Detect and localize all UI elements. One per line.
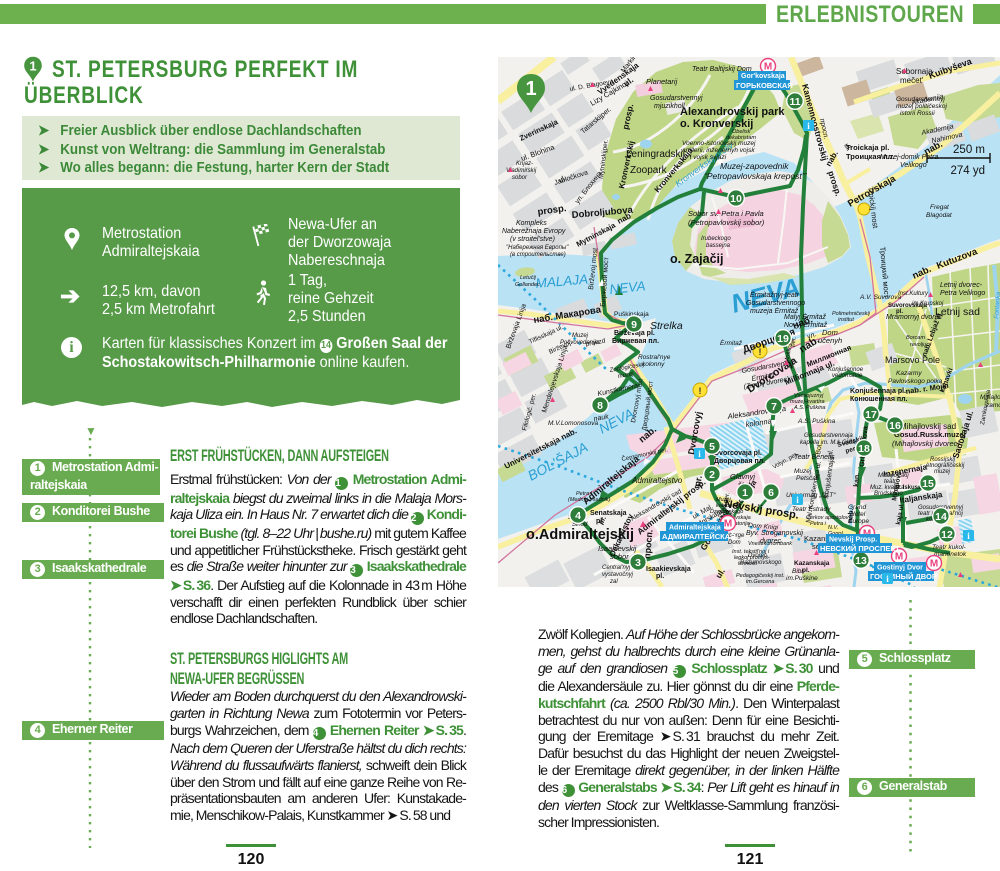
svg-text:institut: institut <box>838 317 854 323</box>
svg-text:Voenno-istoričeskij muzej: Voenno-istoričeskij muzej <box>682 140 756 147</box>
svg-text:6: 6 <box>768 487 774 499</box>
svg-text:M: M <box>895 552 903 563</box>
svg-text:10: 10 <box>730 193 742 205</box>
svg-text:(Petropavlovskij sobor): (Petropavlovskij sobor) <box>688 218 765 227</box>
svg-text:Muzej-zapovednik: Muzej-zapovednik <box>720 161 789 171</box>
svg-text:zal: zal <box>609 579 618 585</box>
svg-text:(v stroitel'stve): (v stroitel'stve) <box>510 236 555 243</box>
svg-text:M: M <box>930 559 938 570</box>
svg-text:A.V. Suvorova: A.V. Suvorova <box>859 294 901 301</box>
svg-text:kolonny: kolonny <box>642 361 665 368</box>
svg-text:Gor'kovskaja: Gor'kovskaja <box>741 73 785 80</box>
svg-text:Letučij: Letučij <box>520 275 537 281</box>
svg-text:14: 14 <box>935 511 947 523</box>
svg-text:Fregat: Fregat <box>930 204 950 211</box>
svg-text:274 yd: 274 yd <box>950 165 985 177</box>
svg-text:muzeja Ėrmitaž: muzeja Ėrmitaž <box>750 307 799 315</box>
svg-text:Teatr kukol-: Teatr kukol- <box>932 544 967 551</box>
svg-text:17: 17 <box>865 409 877 421</box>
svg-text:Knjaz-: Knjaz- <box>516 161 533 167</box>
svg-text:A.S. Puškina: A.S. Puškina <box>793 405 826 411</box>
svg-text:Naberežnaja Evropy: Naberežnaja Evropy <box>502 228 566 235</box>
svg-text:ГОСТИНЫЙ ДВОР: ГОСТИНЫЙ ДВОР <box>870 572 937 581</box>
svg-text:19: 19 <box>777 333 789 345</box>
svg-text:4: 4 <box>575 510 581 522</box>
svg-text:Dvorec: Dvorec <box>748 553 767 559</box>
svg-text:Petra Velikogo: Petra Velikogo <box>940 290 985 297</box>
svg-text:Gostinyj Dvor: Gostinyj Dvor <box>877 565 923 572</box>
svg-text:M: M <box>764 62 772 73</box>
svg-text:Muzej: Muzej <box>794 468 812 475</box>
svg-text:Velikogo: Velikogo <box>900 162 927 169</box>
svg-text:sobor: sobor <box>610 552 629 561</box>
svg-text:vystavočnyj: vystavočnyj <box>602 572 634 578</box>
svg-text:Inst.Kultury: Inst.Kultury <box>898 291 929 297</box>
svg-text:(Mihajlovskij dvorec): (Mihajlovskij dvorec) <box>892 439 960 448</box>
svg-text:Irubeckogo: Irubeckogo <box>701 236 731 242</box>
svg-text:Sobor sv. Petra i Pavla: Sobor sv. Petra i Pavla <box>688 209 764 218</box>
svg-text:Gosud.Russk.muzej: Gosud.Russk.muzej <box>894 430 966 439</box>
svg-text:Kompleks: Kompleks <box>516 220 547 227</box>
svg-text:"Набережная Европы": "Набережная Европы" <box>506 245 569 251</box>
svg-text:9: 9 <box>631 319 637 331</box>
svg-text:vedomstvie: vedomstvie <box>832 373 863 379</box>
svg-text:Leningradskij: Leningradskij <box>626 149 685 160</box>
svg-text:Kazarmy: Kazarmy <box>896 370 922 377</box>
svg-text:ГОРЬКОВСКАЯ: ГОРЬКОВСКАЯ <box>736 81 793 90</box>
svg-text:pl.: pl. <box>656 573 664 580</box>
svg-text:Конюшенная пл.: Конюшенная пл. <box>850 396 908 403</box>
svg-text:Hotel: Hotel <box>850 511 866 518</box>
svg-text:Admiraltejskaja: Admiraltejskaja <box>669 525 721 532</box>
svg-text:ul.: ul. <box>827 449 835 457</box>
svg-text:Grand: Grand <box>848 504 866 511</box>
svg-text:Fontanka: Fontanka <box>993 291 1000 319</box>
svg-text:1: 1 <box>742 487 748 499</box>
svg-text:1: 1 <box>29 59 36 74</box>
svg-text:8: 8 <box>597 400 603 412</box>
svg-text:1: 1 <box>525 78 536 100</box>
svg-text:bassejna: bassejna <box>706 243 731 249</box>
svg-text:Ėrmitažnyj-teatr: Ėrmitažnyj-teatr <box>750 291 800 299</box>
svg-text:Gosudarstvennogo: Gosudarstvennogo <box>746 300 805 307</box>
svg-text:o. Zajačij: o. Zajačij <box>670 252 724 266</box>
svg-text:!: ! <box>699 386 702 396</box>
svg-text:Planetarij: Planetarij <box>646 77 678 86</box>
svg-text:im.Krupskoj: im.Krupskoj <box>912 301 944 307</box>
svg-text:dekabristam: dekabristam <box>726 135 756 141</box>
svg-text:Mihajlovskij sad: Mihajlovskij sad <box>900 422 956 431</box>
svg-text:Isaakievskaja: Isaakievskaja <box>646 566 691 573</box>
svg-text:13: 13 <box>855 555 867 567</box>
svg-text:Gosudarstvennyj: Gosudarstvennyj <box>650 95 703 102</box>
svg-text:muzej: muzej <box>934 469 951 475</box>
svg-text:sobor: sobor <box>512 175 528 181</box>
svg-text:Byv. Stroganovskij: Byv. Stroganovskij <box>746 530 804 537</box>
svg-text:A.S. Puškina: A.S. Puškina <box>797 418 836 425</box>
svg-text:Rostral'nye: Rostral'nye <box>638 354 671 361</box>
svg-text:im.Puškine: im.Puškine <box>786 575 818 582</box>
svg-text:kan.: kan. <box>853 473 861 488</box>
svg-text:i vojsk svjazi: i vojsk svjazi <box>690 154 727 161</box>
svg-text:Strelka: Strelka <box>650 320 683 332</box>
svg-text:12: 12 <box>941 529 953 541</box>
svg-text:Gollandec: Gollandec <box>515 282 540 288</box>
svg-text:Троицкая пл.: Троицкая пл. <box>846 152 894 161</box>
svg-text:3: 3 <box>635 557 641 569</box>
svg-text:Kazanskaja: Kazanskaja <box>794 560 830 567</box>
svg-text:Alexandrovskij park: Alexandrovskij park <box>680 106 785 118</box>
svg-text:M: M <box>724 519 732 530</box>
svg-text:7: 7 <box>771 401 777 413</box>
svg-text:Дворцовая пл.: Дворцовая пл. <box>714 458 765 465</box>
svg-text:5: 5 <box>709 441 715 453</box>
svg-text:2: 2 <box>709 469 715 481</box>
svg-text:učenyh: učenyh <box>818 336 842 345</box>
svg-text:15: 15 <box>922 478 934 490</box>
svg-text:Nevskij Prosp.: Nevskij Prosp. <box>829 537 877 544</box>
svg-text:Troickaja pl.: Troickaja pl. <box>846 143 889 152</box>
svg-text:Ėrmitaž: Ėrmitaž <box>720 339 743 347</box>
svg-text:Borcam: Borcam <box>906 335 925 341</box>
svg-text:pl.: pl. <box>802 567 810 574</box>
svg-text:16: 16 <box>889 420 901 432</box>
svg-text:dvorec: dvorec <box>760 538 782 545</box>
svg-text:(Mednyj Vsadnik): (Mednyj Vsadnik) <box>568 497 611 503</box>
svg-text:Muzej: Muzej <box>572 333 589 339</box>
svg-text:НЕВСКИЙ ПРОСПЕКТ: НЕВСКИЙ ПРОСПЕКТ <box>820 544 900 553</box>
svg-text:Admiraltejstvo: Admiraltejstvo <box>631 476 683 485</box>
svg-text:АДМИРАЛТЕЙСКАЯ: АДМИРАЛТЕЙСКАЯ <box>662 532 736 541</box>
svg-text:Petra i: Petra i <box>810 521 827 527</box>
svg-text:11: 11 <box>789 96 800 108</box>
svg-text:Blagodat: Blagodat <box>926 212 953 219</box>
svg-text:(в строительстве): (в строительстве) <box>510 252 566 258</box>
svg-text:250 m: 250 m <box>953 144 985 156</box>
svg-text:Zoopark: Zoopark <box>630 165 668 176</box>
svg-text:revoljucii: revoljucii <box>910 342 932 348</box>
svg-text:mjuzikholl: mjuzikholl <box>654 103 685 110</box>
svg-text:im.Gercena: im.Gercena <box>746 579 774 585</box>
svg-text:Europe: Europe <box>848 518 869 525</box>
svg-text:Konjušennaja pl.: Konjušennaja pl. <box>850 388 906 395</box>
svg-text:Биржевая пл.: Биржевая пл. <box>612 338 659 345</box>
svg-text:Gosudarstvennaja: Gosudarstvennaja <box>804 433 853 439</box>
svg-text:istorii Rossii: istorii Rossii <box>900 110 935 117</box>
svg-text:pr.: pr. <box>692 475 704 488</box>
svg-text:Razumovskogo: Razumovskogo <box>740 560 782 566</box>
svg-text:mečet': mečet' <box>900 76 924 85</box>
svg-text:18: 18 <box>858 443 870 455</box>
svg-text:Marsovo Pole: Marsovo Pole <box>885 355 940 365</box>
svg-text:Dvorcovaja pl.: Dvorcovaja pl. <box>714 450 762 457</box>
svg-text:Central'nyj: Central'nyj <box>602 565 631 571</box>
svg-text:“Petropavlovskaja krepost’”: “Petropavlovskaja krepost’” <box>704 171 808 181</box>
svg-text:Senatskaja: Senatskaja <box>590 510 627 517</box>
svg-text:Letnij dvorec-: Letnij dvorec- <box>940 282 983 289</box>
